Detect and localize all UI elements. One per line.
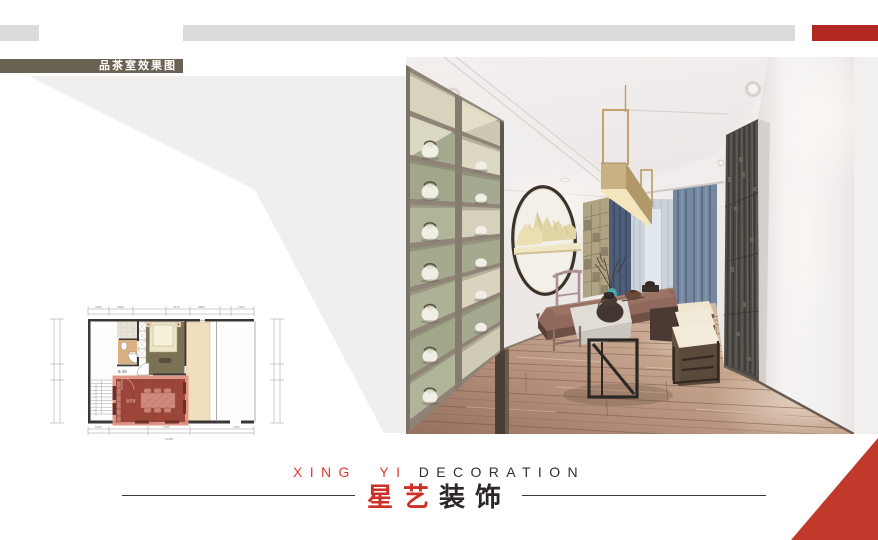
svg-text:2880: 2880 bbox=[198, 305, 205, 309]
svg-text:1150: 1150 bbox=[238, 305, 245, 309]
svg-text:3170: 3170 bbox=[173, 305, 180, 309]
svg-text:品茶室: 品茶室 bbox=[126, 398, 136, 403]
svg-text:7100: 7100 bbox=[163, 425, 170, 429]
svg-text:9.49: 9.49 bbox=[118, 369, 127, 374]
svg-text:2080: 2080 bbox=[117, 305, 124, 309]
svg-text:12400: 12400 bbox=[165, 437, 174, 441]
svg-text:1150: 1150 bbox=[233, 425, 240, 429]
svg-text:2400: 2400 bbox=[95, 305, 102, 309]
svg-text:1460: 1460 bbox=[95, 425, 102, 429]
